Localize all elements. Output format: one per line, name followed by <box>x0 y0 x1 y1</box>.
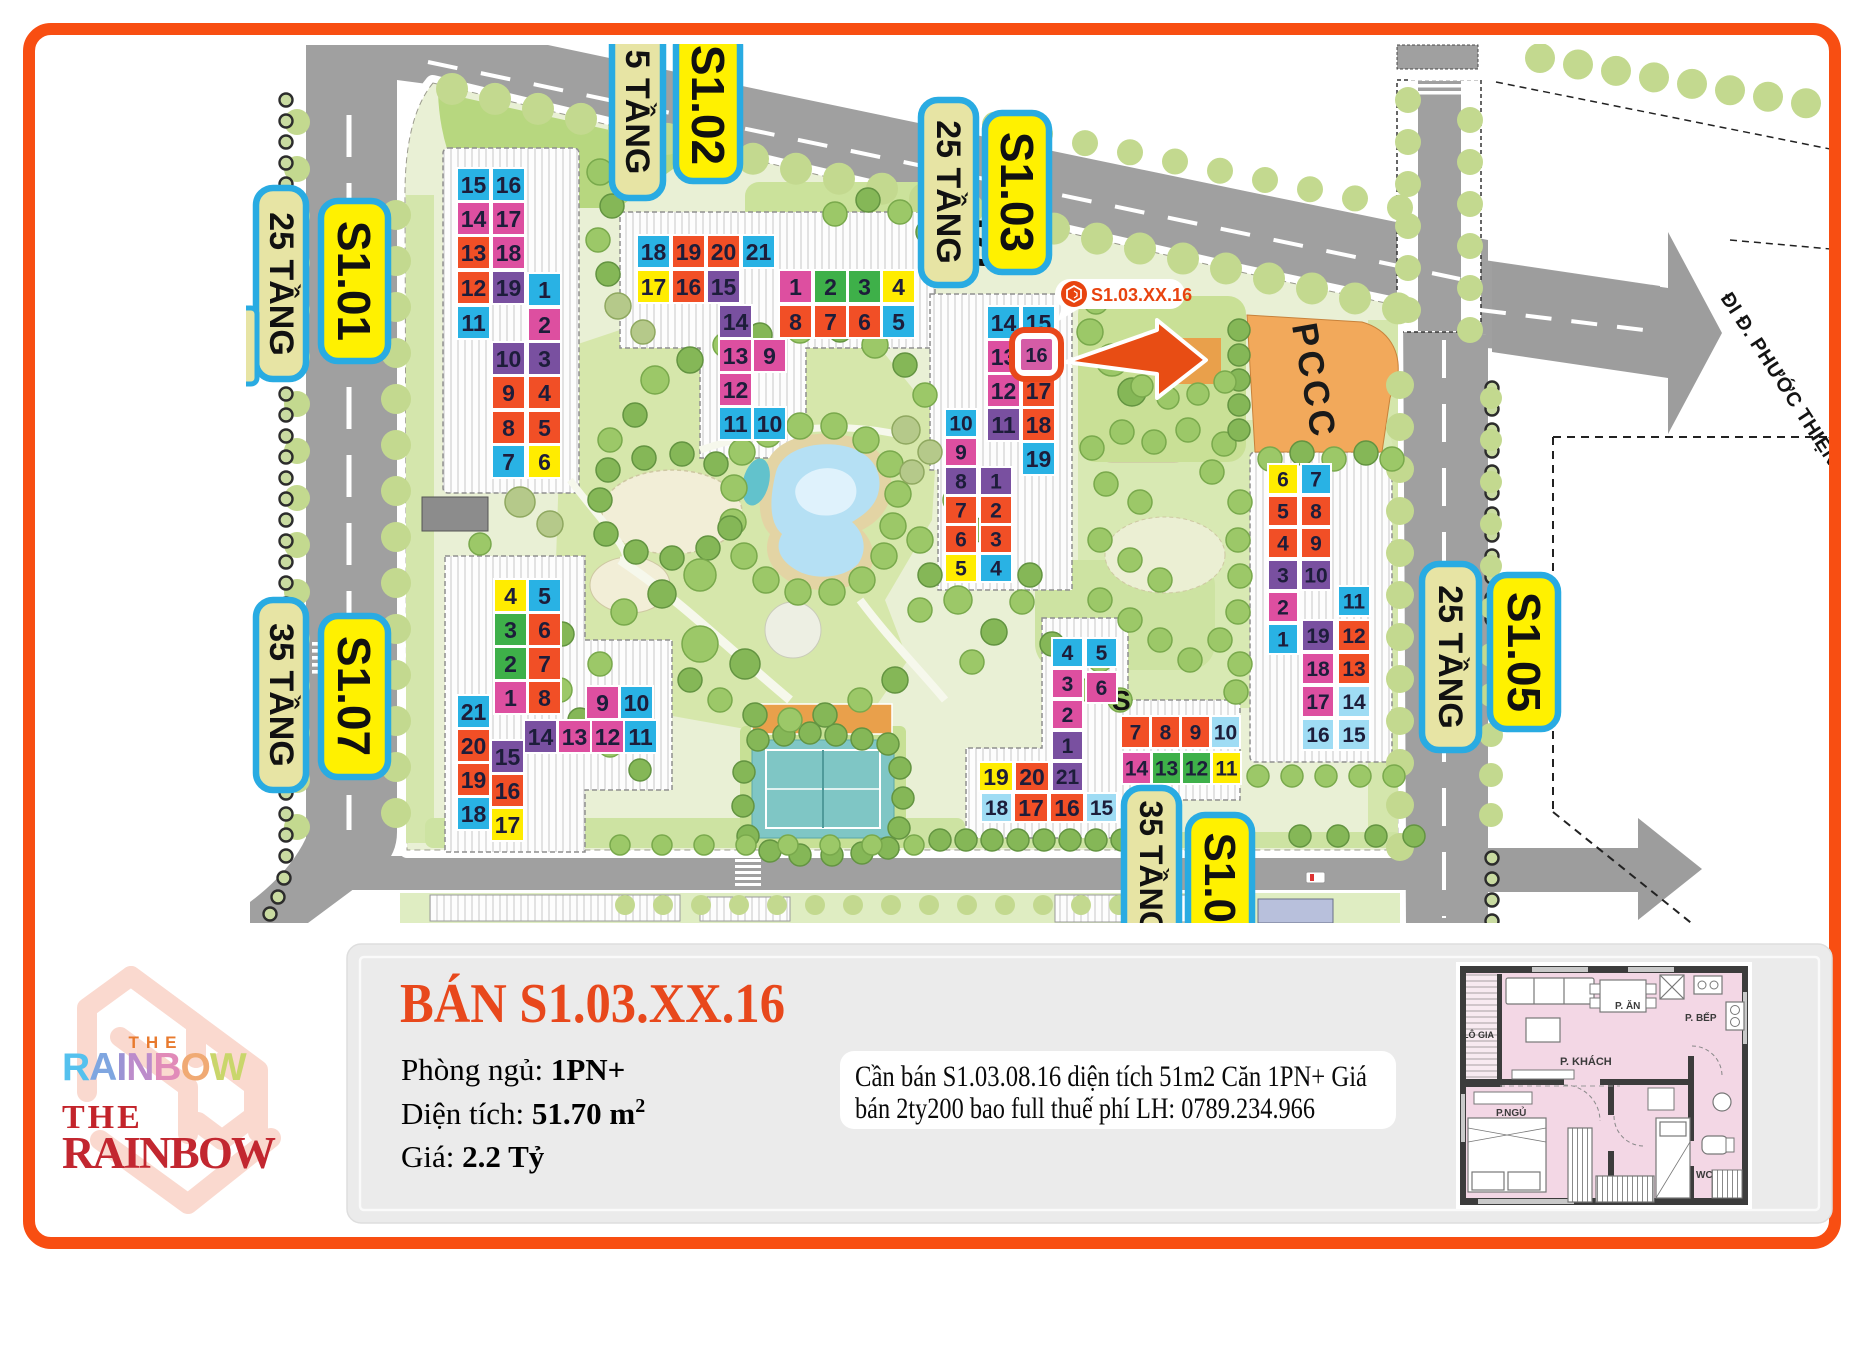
svg-text:6: 6 <box>1277 469 1289 492</box>
svg-text:25 TẦNG: 25 TẦNG <box>929 120 967 264</box>
svg-text:11: 11 <box>723 411 748 437</box>
svg-text:2: 2 <box>1062 704 1074 727</box>
svg-text:10: 10 <box>624 690 650 716</box>
svg-text:6: 6 <box>538 449 551 475</box>
svg-text:19: 19 <box>983 764 1009 790</box>
svg-text:2: 2 <box>504 651 517 677</box>
svg-text:13: 13 <box>1342 658 1365 681</box>
svg-text:13: 13 <box>562 724 588 750</box>
svg-text:17: 17 <box>1018 795 1044 821</box>
svg-text:18: 18 <box>985 797 1009 820</box>
svg-text:5: 5 <box>538 583 551 609</box>
svg-text:8: 8 <box>538 685 551 711</box>
svg-text:12: 12 <box>723 377 749 403</box>
svg-text:14: 14 <box>991 310 1017 336</box>
svg-text:P. BẾP: P. BẾP <box>1685 1011 1717 1024</box>
svg-text:14: 14 <box>528 724 554 750</box>
svg-text:WC: WC <box>1696 1170 1713 1181</box>
svg-text:Diện tích: 51.70 m2: Diện tích: 51.70 m2 <box>401 1095 645 1131</box>
svg-text:15: 15 <box>495 744 521 770</box>
svg-text:13: 13 <box>1155 758 1178 781</box>
svg-text:20: 20 <box>461 733 487 759</box>
svg-text:19: 19 <box>1306 625 1329 648</box>
svg-text:6: 6 <box>1096 677 1108 700</box>
svg-text:11: 11 <box>461 310 486 336</box>
svg-text:21: 21 <box>746 239 772 265</box>
svg-text:4: 4 <box>1277 533 1289 556</box>
svg-text:3: 3 <box>504 617 517 643</box>
svg-text:LÔ GIA: LÔ GIA <box>1463 1029 1494 1040</box>
svg-text:17: 17 <box>495 812 521 838</box>
svg-text:16: 16 <box>1054 795 1080 821</box>
svg-text:RAINBOW: RAINBOW <box>62 1128 276 1178</box>
svg-text:15: 15 <box>711 274 737 300</box>
svg-text:9: 9 <box>955 442 967 465</box>
svg-text:10: 10 <box>496 346 522 372</box>
svg-text:8: 8 <box>1310 501 1322 524</box>
svg-text:S1.07: S1.07 <box>328 636 380 756</box>
svg-text:8: 8 <box>955 471 967 494</box>
svg-text:11: 11 <box>1343 591 1366 614</box>
svg-text:25 TẦNG: 25 TẦNG <box>1431 585 1469 729</box>
svg-text:15: 15 <box>1090 797 1114 820</box>
svg-text:7: 7 <box>502 449 515 475</box>
svg-text:14: 14 <box>1125 758 1149 781</box>
svg-text:18: 18 <box>641 239 667 265</box>
svg-text:Giá: 2.2 Tỷ: Giá: 2.2 Tỷ <box>401 1139 545 1174</box>
svg-text:P. ĂN: P. ĂN <box>1615 999 1640 1012</box>
svg-text:1: 1 <box>1277 629 1289 652</box>
svg-text:9: 9 <box>1190 722 1202 745</box>
svg-text:8: 8 <box>789 309 802 335</box>
svg-text:7: 7 <box>1310 469 1322 492</box>
svg-text:13: 13 <box>461 240 487 266</box>
svg-text:4: 4 <box>538 380 551 406</box>
svg-text:7: 7 <box>538 651 551 677</box>
svg-text:bán 2ty200 bao full thuế phí L: bán 2ty200 bao full thuế phí LH: 0789.23… <box>855 1092 1315 1125</box>
svg-text:12: 12 <box>991 378 1017 404</box>
svg-text:7: 7 <box>1130 722 1142 745</box>
svg-text:19: 19 <box>496 275 522 301</box>
svg-text:17: 17 <box>1306 691 1329 714</box>
svg-text:S1.03.XX.16: S1.03.XX.16 <box>1091 285 1192 305</box>
svg-text:2: 2 <box>824 274 837 300</box>
svg-text:13: 13 <box>723 343 749 369</box>
svg-text:Phòng ngủ: 1PN+: Phòng ngủ: 1PN+ <box>401 1052 625 1087</box>
svg-text:19: 19 <box>1026 446 1052 472</box>
svg-text:1: 1 <box>504 685 517 711</box>
svg-text:2: 2 <box>990 500 1002 523</box>
svg-text:17: 17 <box>641 274 667 300</box>
svg-text:S1.01: S1.01 <box>328 221 380 341</box>
svg-text:17: 17 <box>496 206 522 232</box>
svg-text:12: 12 <box>1185 758 1208 781</box>
svg-text:19: 19 <box>461 767 487 793</box>
svg-text:8: 8 <box>1160 722 1172 745</box>
svg-text:10: 10 <box>1214 722 1237 745</box>
svg-text:Cần bán S1.03.08.16 diện tích: Cần bán S1.03.08.16 diện tích 51m2 Căn 1… <box>855 1060 1367 1093</box>
svg-text:20: 20 <box>1019 764 1045 790</box>
svg-text:P. KHÁCH: P. KHÁCH <box>1560 1055 1612 1068</box>
svg-text:S1.03: S1.03 <box>991 132 1043 252</box>
svg-text:4: 4 <box>990 558 1002 581</box>
svg-text:12: 12 <box>1342 625 1365 648</box>
svg-text:15: 15 <box>461 172 487 198</box>
svg-text:5: 5 <box>1096 642 1108 665</box>
svg-text:5 TẦNG: 5 TẦNG <box>618 50 656 175</box>
svg-text:4: 4 <box>504 583 517 609</box>
svg-text:5: 5 <box>892 309 905 335</box>
svg-text:9: 9 <box>596 690 609 716</box>
svg-text:35 TẦNG: 35 TẦNG <box>262 623 300 767</box>
svg-text:15: 15 <box>1342 724 1366 747</box>
svg-text:11: 11 <box>991 412 1016 438</box>
svg-text:14: 14 <box>723 309 749 335</box>
svg-text:18: 18 <box>1026 412 1052 438</box>
svg-text:S1.02: S1.02 <box>682 45 734 165</box>
svg-text:18: 18 <box>496 240 522 266</box>
svg-text:3: 3 <box>1277 565 1289 588</box>
svg-text:7: 7 <box>824 309 837 335</box>
svg-text:1: 1 <box>990 471 1002 494</box>
svg-text:5: 5 <box>538 415 551 441</box>
svg-text:35 TẦNG: 35 TẦNG <box>1133 800 1169 935</box>
svg-text:14: 14 <box>461 206 487 232</box>
svg-text:12: 12 <box>595 724 621 750</box>
svg-text:2: 2 <box>538 312 551 338</box>
svg-text:3: 3 <box>1062 673 1074 696</box>
svg-text:3: 3 <box>858 274 871 300</box>
svg-text:S1.05: S1.05 <box>1498 592 1550 712</box>
svg-text:1: 1 <box>789 274 802 300</box>
svg-text:5: 5 <box>1277 501 1289 524</box>
svg-text:18: 18 <box>461 801 487 827</box>
svg-text:6: 6 <box>955 529 967 552</box>
svg-text:19: 19 <box>676 239 702 265</box>
svg-text:8: 8 <box>502 415 515 441</box>
svg-text:16: 16 <box>1306 724 1329 747</box>
svg-text:3: 3 <box>538 346 551 372</box>
svg-text:4: 4 <box>1062 642 1074 665</box>
svg-text:12: 12 <box>461 275 487 301</box>
svg-text:16: 16 <box>676 274 702 300</box>
svg-text:7: 7 <box>955 500 967 523</box>
svg-text:16: 16 <box>1025 345 1047 367</box>
svg-text:6: 6 <box>858 309 871 335</box>
svg-text:14: 14 <box>1342 691 1366 714</box>
svg-text:16: 16 <box>496 172 522 198</box>
svg-text:21: 21 <box>461 699 487 725</box>
svg-text:BÁN S1.03.XX.16: BÁN S1.03.XX.16 <box>400 973 785 1035</box>
svg-text:10: 10 <box>757 411 783 437</box>
svg-text:1: 1 <box>1062 735 1074 758</box>
svg-text:3: 3 <box>990 529 1002 552</box>
svg-text:9: 9 <box>763 343 776 369</box>
svg-text:5: 5 <box>955 558 967 581</box>
svg-text:P.NGỦ: P.NGỦ <box>1496 1106 1526 1119</box>
svg-text:20: 20 <box>711 239 737 265</box>
svg-text:25 TẦNG: 25 TẦNG <box>262 212 300 356</box>
svg-text:RAINBOW: RAINBOW <box>62 1046 247 1089</box>
svg-text:6: 6 <box>538 617 551 643</box>
svg-text:9: 9 <box>1310 533 1322 556</box>
svg-text:2: 2 <box>1277 597 1289 620</box>
svg-text:16: 16 <box>495 778 521 804</box>
svg-text:11: 11 <box>1215 758 1238 781</box>
svg-text:10: 10 <box>949 413 972 436</box>
svg-text:9: 9 <box>502 380 515 406</box>
svg-text:21: 21 <box>1056 766 1080 789</box>
svg-text:4: 4 <box>892 274 905 300</box>
svg-text:11: 11 <box>628 724 653 750</box>
svg-text:10: 10 <box>1304 565 1327 588</box>
svg-text:18: 18 <box>1306 658 1330 681</box>
svg-text:1: 1 <box>538 277 551 303</box>
